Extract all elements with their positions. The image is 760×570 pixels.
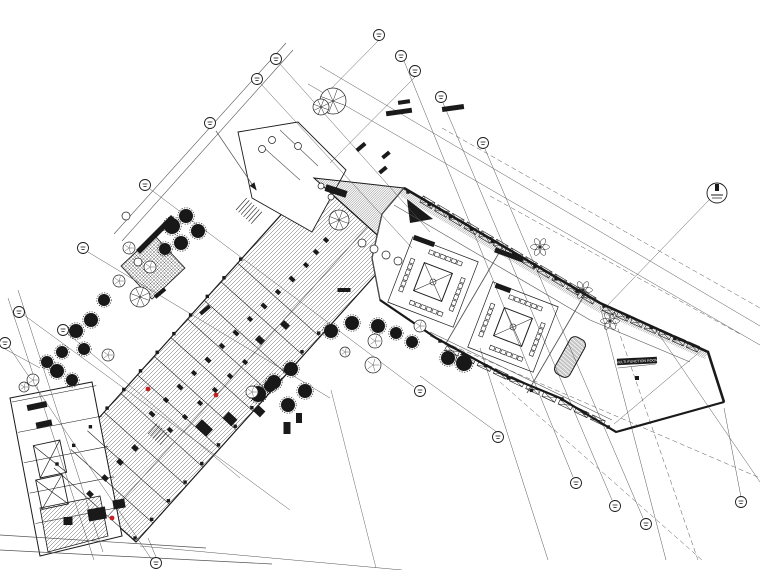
red-marker-dot bbox=[214, 393, 219, 398]
label-bar bbox=[64, 517, 73, 525]
tree-dark-icon bbox=[50, 364, 64, 378]
red-marker-dot bbox=[146, 387, 151, 392]
grid-bubble bbox=[151, 558, 162, 569]
fixture-circle bbox=[370, 245, 378, 253]
grid-bubble bbox=[436, 92, 447, 103]
fixture-circle bbox=[328, 194, 334, 200]
grid-bubble bbox=[0, 338, 11, 349]
grid-bubble bbox=[396, 51, 407, 62]
tree-dark-icon bbox=[56, 346, 68, 358]
label-bar bbox=[378, 166, 387, 175]
fixture-circle bbox=[318, 183, 324, 189]
label-bar bbox=[284, 422, 291, 434]
label-bar bbox=[356, 142, 367, 152]
grid-bubble bbox=[736, 497, 747, 508]
label-bar bbox=[442, 104, 464, 112]
tree-dark-icon bbox=[406, 336, 418, 348]
red-marker-dot bbox=[110, 516, 115, 521]
tree-dark-icon bbox=[264, 380, 276, 392]
tree-dark-icon bbox=[66, 374, 78, 386]
fixture-circle bbox=[295, 143, 302, 150]
grid-bubble bbox=[493, 432, 504, 443]
tree-dark-icon bbox=[281, 398, 295, 412]
grid-bubble bbox=[610, 501, 621, 512]
floor-plan-svg: MULTI-FUNCTION ROOM bbox=[0, 0, 760, 570]
grid-bubble bbox=[252, 74, 263, 85]
floor-plan-canvas: MULTI-FUNCTION ROOM bbox=[0, 0, 760, 570]
tree-dark-icon bbox=[324, 324, 338, 338]
grid-bubble bbox=[410, 66, 421, 77]
tree-dark-icon bbox=[456, 355, 472, 371]
fixture-circle bbox=[134, 258, 142, 266]
tree-dark-icon bbox=[159, 243, 171, 255]
grid-bubble bbox=[571, 478, 582, 489]
grid-bubble bbox=[140, 180, 151, 191]
grid-bubble bbox=[271, 54, 282, 65]
fixture-circle bbox=[122, 212, 130, 220]
grid-bubble bbox=[641, 519, 652, 530]
tree-petal-icon bbox=[538, 238, 547, 249]
fixture-circle bbox=[259, 146, 266, 153]
tree-petal-icon bbox=[581, 281, 590, 292]
fixture-circle bbox=[382, 251, 390, 259]
label-bar bbox=[386, 108, 412, 117]
tree-dark-icon bbox=[345, 316, 359, 330]
grid-bubble bbox=[478, 138, 489, 149]
tree-dark-icon bbox=[174, 236, 188, 250]
grid-bubble bbox=[205, 118, 216, 129]
tree-dark-icon bbox=[390, 327, 402, 339]
tree-dark-icon bbox=[84, 313, 98, 327]
label-bar bbox=[296, 413, 302, 423]
tree-dark-icon bbox=[78, 343, 90, 355]
tree-dark-icon bbox=[41, 356, 53, 368]
fixture-circle bbox=[394, 257, 402, 265]
tree-dark-icon bbox=[191, 224, 205, 238]
grid-bubble bbox=[58, 325, 69, 336]
grid-bubble bbox=[415, 386, 426, 397]
tree-dark-icon bbox=[298, 384, 312, 398]
label-bar bbox=[338, 288, 351, 292]
grid-bubble bbox=[374, 30, 385, 41]
label-bar bbox=[635, 376, 639, 380]
tree-dark-icon bbox=[441, 351, 455, 365]
tree-petal-icon bbox=[533, 238, 542, 249]
tree-dark-icon bbox=[371, 319, 385, 333]
fixture-circle bbox=[269, 137, 276, 144]
tree-dark-icon bbox=[98, 294, 110, 306]
tree-dark-icon bbox=[284, 362, 298, 376]
tree-dark-icon bbox=[179, 209, 193, 223]
grid-bubble bbox=[14, 307, 25, 318]
fixture-circle bbox=[358, 239, 366, 247]
label-bar bbox=[381, 151, 390, 160]
label-bar bbox=[398, 99, 410, 105]
tree-dark-icon bbox=[164, 218, 180, 234]
grid-bubble bbox=[78, 243, 89, 254]
stair-icon bbox=[236, 198, 262, 224]
tree-dark-icon bbox=[69, 324, 83, 338]
